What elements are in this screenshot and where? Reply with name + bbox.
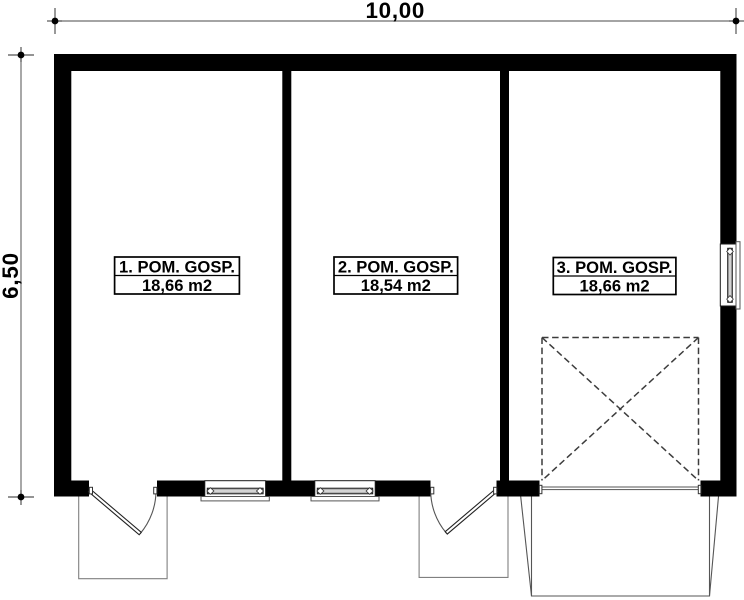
svg-text:3. POM. GOSP.: 3. POM. GOSP. (557, 258, 673, 277)
svg-text:1. POM. GOSP.: 1. POM. GOSP. (119, 258, 235, 277)
svg-text:2. POM. GOSP.: 2. POM. GOSP. (338, 258, 454, 277)
svg-text:6,50: 6,50 (0, 252, 23, 299)
svg-text:18,54 m2: 18,54 m2 (361, 276, 431, 295)
svg-text:10,00: 10,00 (366, 0, 426, 23)
svg-text:18,66 m2: 18,66 m2 (142, 276, 212, 295)
svg-text:18,66 m2: 18,66 m2 (580, 277, 650, 296)
